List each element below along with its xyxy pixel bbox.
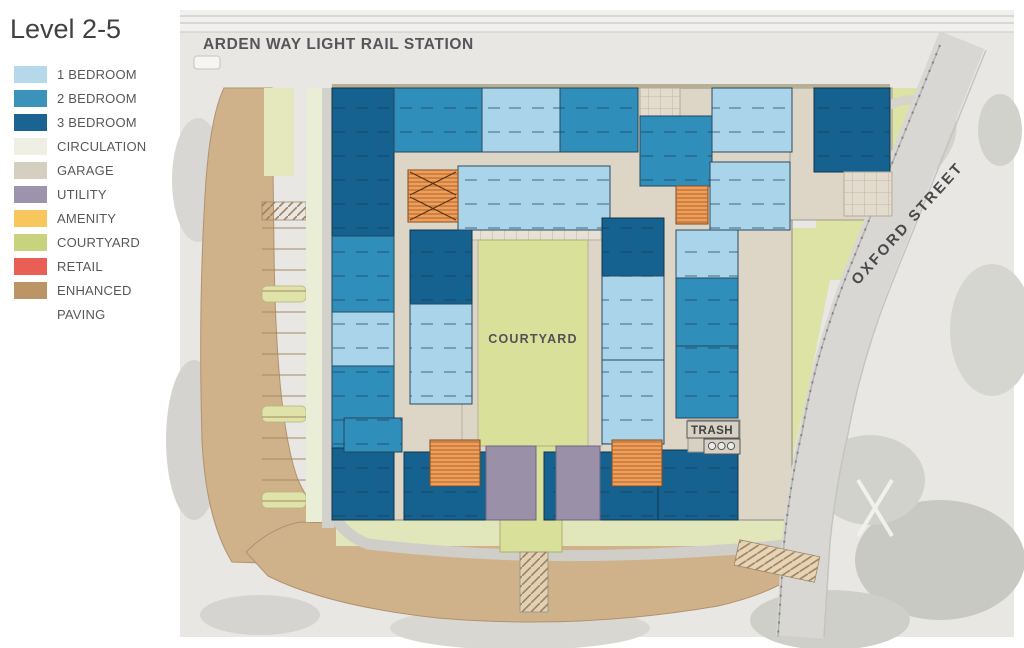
legend-swatch-retail <box>14 258 47 275</box>
unit-3br-texture <box>332 448 394 520</box>
bottom-crosswalk <box>520 552 548 612</box>
legend-swatch-1-bedroom <box>14 66 47 83</box>
unit-2br-texture <box>676 346 738 418</box>
legend-label: 1 BEDROOM <box>57 63 169 87</box>
unit-1br-texture <box>458 166 610 230</box>
unit-stair-texture <box>430 440 480 486</box>
unit-util <box>486 446 536 520</box>
unit-stair-texture <box>612 440 662 486</box>
legend-label: UTILITY <box>57 183 169 207</box>
unit-garage-texture <box>640 88 680 116</box>
legend-label: 2 BEDROOM <box>57 87 169 111</box>
legend-swatch-amenity <box>14 210 47 227</box>
unit-2br-texture <box>560 88 638 152</box>
legend-label: CIRCULATION <box>57 135 169 159</box>
legend-item-circulation: CIRCULATION <box>0 135 180 159</box>
unit-3br-texture <box>602 218 664 276</box>
unit-util <box>556 446 600 520</box>
unit-1br-texture <box>710 162 790 230</box>
unit-1br-texture <box>712 88 792 152</box>
legend-item-garage: GARAGE <box>0 159 180 183</box>
parked-car <box>194 56 220 69</box>
legend-item-2-bedroom: 2 BEDROOM <box>0 87 180 111</box>
legend-swatch-utility <box>14 186 47 203</box>
legend-swatch-2-bedroom <box>14 90 47 107</box>
legend-item-utility: UTILITY <box>0 183 180 207</box>
unit-2br-texture <box>394 88 482 152</box>
legend-label: 3 BEDROOM <box>57 111 169 135</box>
legend-label: RETAIL <box>57 255 169 279</box>
trash-bin-icon <box>718 442 725 449</box>
page-title: Level 2-5 <box>10 14 180 45</box>
unit-1br-texture <box>676 230 738 278</box>
unit-3br-texture <box>332 88 394 236</box>
unit-2br-texture <box>676 278 738 346</box>
station-label: ARDEN WAY LIGHT RAIL STATION <box>203 36 474 54</box>
courtyard-label: COURTYARD <box>488 332 578 346</box>
legend-item-amenity: AMENITY <box>0 207 180 231</box>
legend-item-retail: RETAIL <box>0 255 180 279</box>
legend-swatch-circulation <box>14 138 47 155</box>
legend: 1 BEDROOM2 BEDROOM3 BEDROOMCIRCULATIONGA… <box>0 63 180 327</box>
trash-label: TRASH <box>691 425 733 437</box>
legend-item-3-bedroom: 3 BEDROOM <box>0 111 180 135</box>
unit-stair-texture <box>676 186 708 224</box>
unit-1br-texture <box>482 88 560 152</box>
legend-swatch-garage <box>14 162 47 179</box>
legend-swatch-enhanced-paving <box>14 282 47 299</box>
unit-2br-texture <box>640 116 712 186</box>
unit-stair-texture <box>408 170 458 222</box>
legend-item-1-bedroom: 1 BEDROOM <box>0 63 180 87</box>
unit-1br-texture <box>332 312 394 366</box>
legend-item-enhanced-paving: ENHANCED PAVING <box>0 279 180 327</box>
legend-panel: Level 2-5 1 BEDROOM2 BEDROOM3 BEDROOMCIR… <box>0 0 180 327</box>
building-north-wall <box>332 84 890 88</box>
legend-label: ENHANCED PAVING <box>57 279 169 327</box>
unit-2br-texture <box>332 236 394 312</box>
trash-bin-icon <box>708 442 715 449</box>
unit-3br-texture <box>410 230 472 304</box>
unit-1br-texture <box>602 276 664 360</box>
loading-hatch <box>262 202 306 220</box>
unit-cream <box>588 240 602 446</box>
legend-swatch-3-bedroom <box>14 114 47 131</box>
unit-1br-texture <box>602 360 664 444</box>
unit-circ <box>306 88 322 522</box>
trash-bin-icon <box>727 442 734 449</box>
legend-label: AMENITY <box>57 207 169 231</box>
unit-3br-texture <box>814 88 890 172</box>
legend-item-courtyard: COURTYARD <box>0 231 180 255</box>
legend-label: GARAGE <box>57 159 169 183</box>
unit-2br-texture <box>344 418 402 452</box>
unit-garage-texture <box>844 172 892 216</box>
unit-3br-texture <box>658 450 738 520</box>
unit-1br-texture <box>410 304 472 404</box>
legend-label: COURTYARD <box>57 231 169 255</box>
legend-swatch-courtyard <box>14 234 47 251</box>
